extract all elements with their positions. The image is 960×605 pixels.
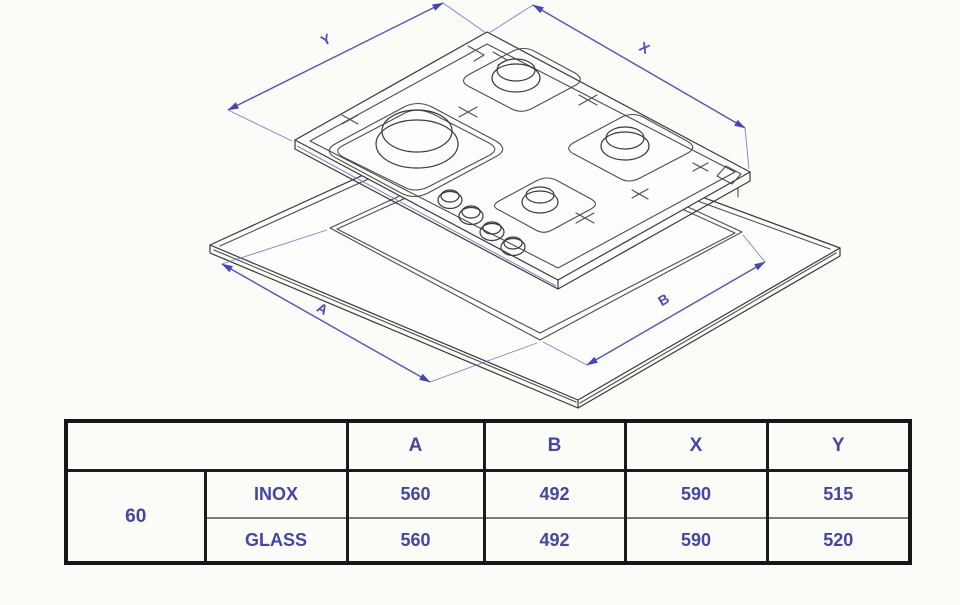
- table-row: 60 INOX 560 492 590 515: [66, 471, 910, 519]
- header-cell-b: B: [484, 421, 625, 471]
- dim-label-y: Y: [318, 30, 334, 49]
- value-cell-y: 520: [767, 518, 910, 563]
- variant-cell: INOX: [205, 471, 347, 519]
- value-cell-b: 492: [484, 471, 625, 519]
- header-cell-x: X: [625, 421, 767, 471]
- dim-label-x: X: [636, 38, 653, 57]
- size-group-cell: 60: [66, 471, 205, 564]
- variant-cell: GLASS: [205, 518, 347, 563]
- value-cell-x: 590: [625, 518, 767, 563]
- value-cell-y: 515: [767, 471, 910, 519]
- value-cell-b: 492: [484, 518, 625, 563]
- page: Y X A B A B: [0, 0, 960, 605]
- table-header-row: A B X Y: [66, 421, 910, 471]
- header-cell-empty: [66, 421, 347, 471]
- value-cell-x: 590: [625, 471, 767, 519]
- dim-label-a: A: [314, 299, 331, 318]
- value-cell-a: 560: [347, 518, 484, 563]
- dimensions-table: A B X Y 60 INOX 560 492 590 515 GLASS 56…: [64, 419, 912, 565]
- header-cell-a: A: [347, 421, 484, 471]
- value-cell-a: 560: [347, 471, 484, 519]
- header-cell-y: Y: [767, 421, 910, 471]
